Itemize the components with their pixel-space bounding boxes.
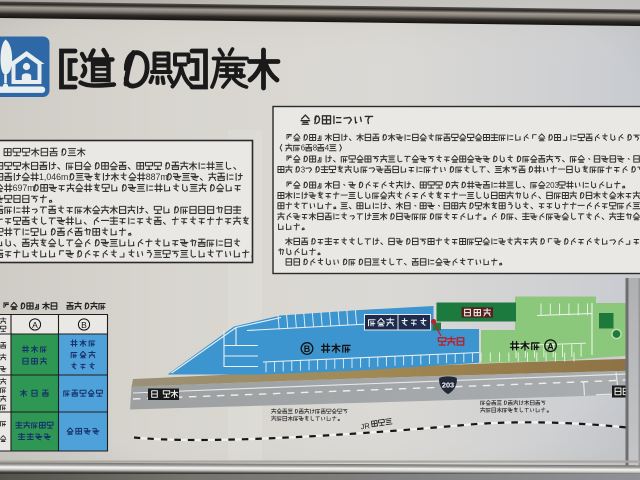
- svg-text:203: 203: [546, 181, 560, 190]
- svg-text:B: B: [304, 344, 311, 354]
- svg-text:8: 8: [313, 144, 318, 153]
- svg-text:3: 3: [301, 165, 306, 174]
- svg-text:B: B: [81, 320, 87, 330]
- svg-text:4: 4: [325, 144, 330, 153]
- svg-text:A: A: [547, 341, 554, 351]
- svg-text:203: 203: [442, 380, 454, 389]
- svg-text:A: A: [32, 320, 38, 330]
- svg-text:697m: 697m: [13, 183, 35, 193]
- svg-text:JR: JR: [360, 421, 371, 431]
- svg-text:6: 6: [301, 144, 306, 153]
- svg-text:1,046m: 1,046m: [39, 172, 68, 182]
- svg-text:887m: 887m: [146, 172, 168, 182]
